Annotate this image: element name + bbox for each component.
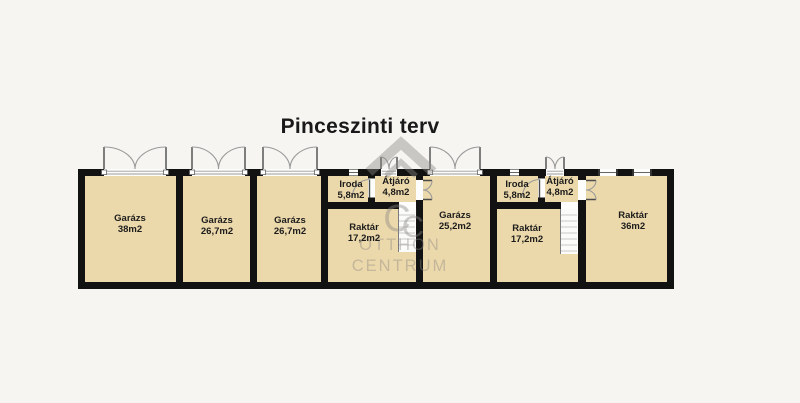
room-label-raktar-2: Raktár 17,2m2 — [511, 223, 543, 245]
room-label-raktar-1: Raktár 17,2m2 — [348, 222, 380, 244]
room-area: 26,7m2 — [274, 226, 306, 237]
room-label-garazs-1: Garázs 38m2 — [114, 213, 146, 235]
floorplan-drawing: C C OTTHON CENTRUM — [0, 0, 800, 403]
room-name: Garázs — [114, 213, 146, 224]
garage-door-symbol-4 — [428, 147, 483, 176]
garage-door-symbol-2 — [190, 147, 248, 176]
room-name: Raktár — [348, 222, 380, 233]
room-name: Raktár — [511, 223, 543, 234]
garage-door-symbol-1 — [102, 147, 169, 176]
window-symbol-2 — [632, 169, 652, 176]
room-name: Garázs — [274, 215, 306, 226]
room-name: Átjáró — [382, 176, 409, 187]
room-label-iroda-1: Iroda 5,8m2 — [338, 179, 365, 201]
plan-title: Pinceszinti terv — [281, 115, 440, 139]
staircase-symbol-2 — [560, 209, 578, 254]
room-label-raktar-3: Raktár 36m2 — [618, 210, 648, 232]
floorplan-page: C C OTTHON CENTRUM Pinceszinti terv Gará… — [0, 0, 800, 403]
room-area: 5,8m2 — [338, 190, 365, 201]
room-name: Garázs — [439, 210, 471, 221]
watermark-roof-icon — [369, 143, 433, 172]
room-label-atjaro-2: Átjáró 4,8m2 — [546, 176, 573, 198]
room-area: 25,2m2 — [439, 221, 471, 232]
room-area: 17,2m2 — [348, 233, 380, 244]
watermark-text-line2: CENTRUM — [352, 257, 449, 275]
garage-door-symbol-3 — [261, 147, 320, 176]
room-label-garazs-4: Garázs 25,2m2 — [439, 210, 471, 232]
room-name: Garázs — [201, 215, 233, 226]
room-label-atjaro-1: Átjáró 4,8m2 — [382, 176, 409, 198]
room-area: 36m2 — [618, 221, 648, 232]
room-area: 26,7m2 — [201, 226, 233, 237]
room-name: Átjáró — [546, 176, 573, 187]
room-label-iroda-2: Iroda 5,8m2 — [504, 179, 531, 201]
room-name: Iroda — [338, 179, 365, 190]
room-area: 17,2m2 — [511, 234, 543, 245]
room-area: 5,8m2 — [504, 190, 531, 201]
room-area: 38m2 — [114, 224, 146, 235]
room-area: 4,8m2 — [546, 187, 573, 198]
room-area: 4,8m2 — [382, 187, 409, 198]
room-label-garazs-3: Garázs 26,7m2 — [274, 215, 306, 237]
room-name: Raktár — [618, 210, 648, 221]
room-label-garazs-2: Garázs 26,7m2 — [201, 215, 233, 237]
window-symbol-1 — [598, 169, 618, 176]
wall-vent-symbol-2 — [510, 170, 519, 176]
entry-door-symbol-2 — [546, 157, 564, 176]
room-name: Iroda — [504, 179, 531, 190]
wall-vent-symbol-1 — [349, 170, 358, 176]
